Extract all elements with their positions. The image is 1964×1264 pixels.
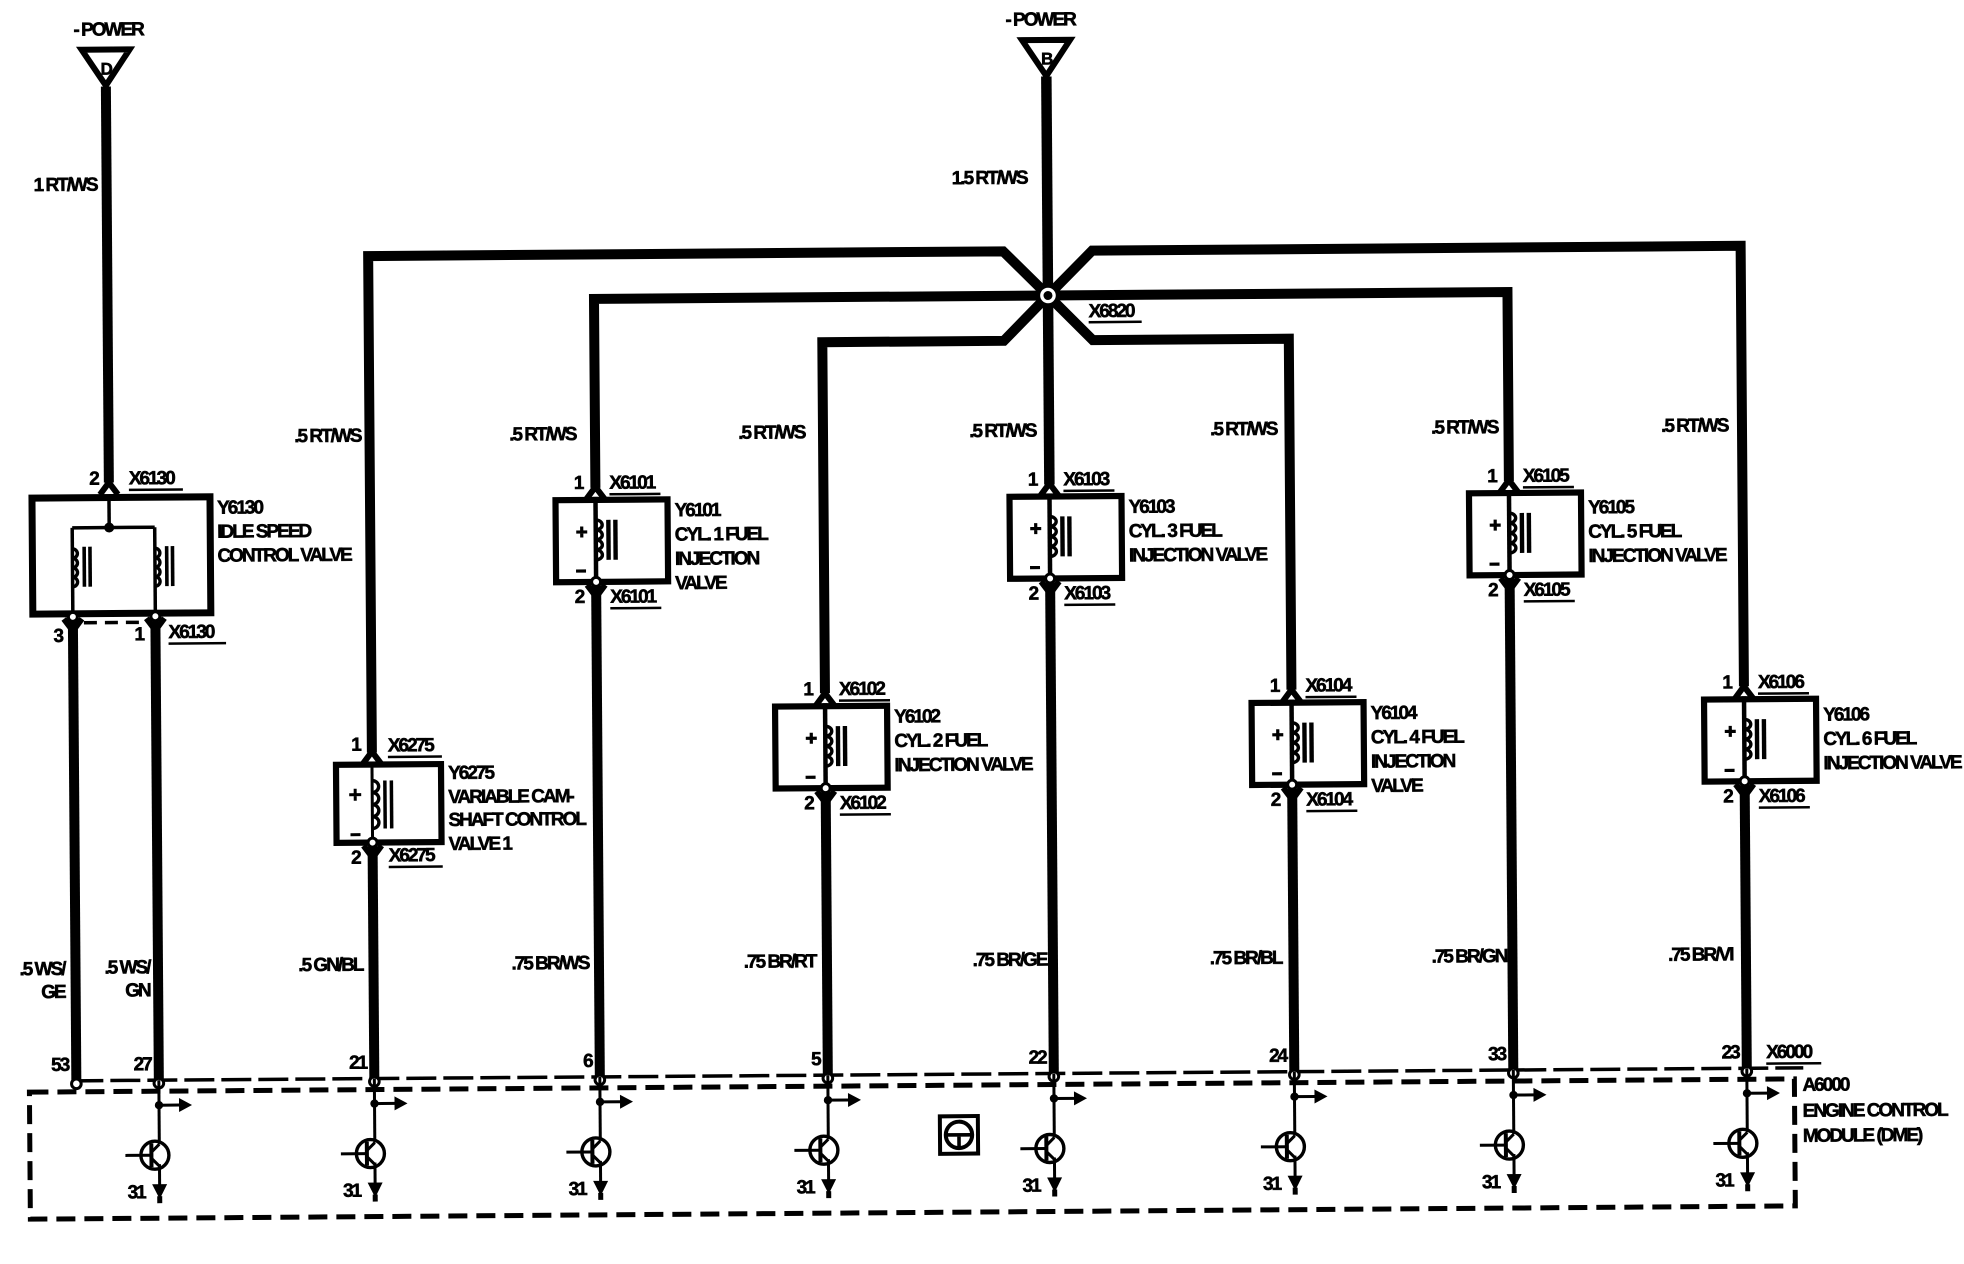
svg-text:31: 31 xyxy=(1022,1176,1042,1197)
svg-text:.75 BR/VI: .75 BR/VI xyxy=(1668,944,1734,965)
svg-text:24: 24 xyxy=(1269,1046,1289,1067)
svg-text:X6102: X6102 xyxy=(840,793,887,814)
svg-text:31: 31 xyxy=(1715,1170,1735,1191)
svg-text:VALVE: VALVE xyxy=(1371,776,1423,797)
svg-text:X6104: X6104 xyxy=(1306,789,1354,810)
svg-text:INJECTION VALVE: INJECTION VALVE xyxy=(1588,545,1727,567)
svg-text:.75 BR/GE: .75 BR/GE xyxy=(973,950,1048,972)
svg-text:SHAFT CONTROL: SHAFT CONTROL xyxy=(448,809,587,831)
svg-text:31: 31 xyxy=(127,1182,147,1203)
svg-text:CYL. 4 FUEL: CYL. 4 FUEL xyxy=(1371,727,1466,749)
svg-text:.5 RT/WS: .5 RT/WS xyxy=(1431,417,1499,439)
svg-text:CYL. 3 FUEL: CYL. 3 FUEL xyxy=(1129,520,1224,542)
svg-text:.5 RT/WS: .5 RT/WS xyxy=(738,422,806,444)
svg-text:VALVE 1: VALVE 1 xyxy=(449,834,514,855)
svg-text:X6130: X6130 xyxy=(168,622,215,643)
svg-text:X6820: X6820 xyxy=(1089,301,1136,322)
svg-text:CYL. 2 FUEL: CYL. 2 FUEL xyxy=(894,730,989,752)
svg-text:Y6105: Y6105 xyxy=(1588,497,1636,518)
svg-text:22: 22 xyxy=(1028,1048,1047,1069)
svg-text:- POWER: - POWER xyxy=(73,19,145,41)
svg-text:.5 GN/BL: .5 GN/BL xyxy=(298,955,365,976)
svg-text:.75 BR/GN: .75 BR/GN xyxy=(1431,946,1507,968)
svg-text:1.5 RT/WS: 1.5 RT/WS xyxy=(952,168,1028,190)
svg-text:1 RT/WS: 1 RT/WS xyxy=(33,175,98,196)
svg-text:53: 53 xyxy=(51,1055,70,1076)
svg-text:X6101: X6101 xyxy=(609,472,657,493)
svg-text:X6105: X6105 xyxy=(1524,580,1572,601)
svg-text:MODULE (DME): MODULE (DME) xyxy=(1803,1125,1923,1147)
svg-text:X6102: X6102 xyxy=(839,679,886,700)
svg-text:31: 31 xyxy=(1263,1174,1283,1195)
svg-text:INJECTION VALVE: INJECTION VALVE xyxy=(1129,544,1268,566)
svg-text:31: 31 xyxy=(568,1179,588,1200)
svg-text:INJECTION VALVE: INJECTION VALVE xyxy=(1823,752,1962,774)
svg-text:21: 21 xyxy=(349,1053,369,1074)
svg-text:Y6102: Y6102 xyxy=(894,706,941,727)
svg-text:31: 31 xyxy=(796,1177,816,1198)
svg-text:CYL. 6 FUEL: CYL. 6 FUEL xyxy=(1823,728,1918,750)
svg-text:Y6101: Y6101 xyxy=(675,500,723,521)
svg-text:.5 RT/WS: .5 RT/WS xyxy=(1661,415,1729,437)
svg-text:Y6103: Y6103 xyxy=(1128,497,1175,518)
svg-text:31: 31 xyxy=(1482,1172,1502,1193)
svg-text:GE: GE xyxy=(41,982,66,1003)
svg-text:VALVE: VALVE xyxy=(675,573,727,594)
svg-text:.5 RT/WS: .5 RT/WS xyxy=(509,424,577,446)
svg-text:.5 WS/: .5 WS/ xyxy=(19,959,67,980)
svg-text:Y6130: Y6130 xyxy=(217,497,264,518)
svg-text:A6000: A6000 xyxy=(1802,1075,1850,1096)
svg-text:CYL. 1 FUEL: CYL. 1 FUEL xyxy=(675,524,770,546)
svg-text:Y6275: Y6275 xyxy=(448,763,496,784)
svg-text:- POWER: - POWER xyxy=(1005,9,1077,31)
svg-text:.5 RT/WS: .5 RT/WS xyxy=(1210,419,1278,441)
svg-text:INJECTION: INJECTION xyxy=(1371,751,1456,773)
svg-text:.75 BR/BL: .75 BR/BL xyxy=(1210,948,1284,970)
svg-text:X6106: X6106 xyxy=(1758,672,1805,693)
svg-text:X6106: X6106 xyxy=(1759,786,1806,807)
svg-text:Y6106: Y6106 xyxy=(1823,704,1870,725)
svg-text:X6130: X6130 xyxy=(129,468,176,489)
svg-text:CONTROL VALVE: CONTROL VALVE xyxy=(217,545,352,567)
svg-text:X6275: X6275 xyxy=(389,845,437,866)
svg-text:.5 RT/WS: .5 RT/WS xyxy=(294,426,362,448)
svg-text:Y6104: Y6104 xyxy=(1371,703,1419,724)
svg-text:.75 BR/WS: .75 BR/WS xyxy=(511,953,590,975)
svg-text:X6103: X6103 xyxy=(1063,469,1110,490)
svg-text:27: 27 xyxy=(134,1054,153,1075)
svg-text:33: 33 xyxy=(1488,1044,1507,1065)
svg-text:23: 23 xyxy=(1721,1042,1740,1063)
svg-text:.5 WS/: .5 WS/ xyxy=(104,957,152,978)
svg-text:X6275: X6275 xyxy=(388,735,436,756)
svg-text:IDLE SPEED: IDLE SPEED xyxy=(217,521,311,543)
svg-text:INJECTION: INJECTION xyxy=(675,548,760,570)
svg-text:X6105: X6105 xyxy=(1523,466,1571,487)
svg-text:31: 31 xyxy=(343,1181,363,1202)
svg-text:CYL. 5 FUEL: CYL. 5 FUEL xyxy=(1588,521,1683,543)
svg-text:X6101: X6101 xyxy=(610,586,658,607)
svg-text:.5 RT/WS: .5 RT/WS xyxy=(969,421,1037,443)
svg-text:INJECTION VALVE: INJECTION VALVE xyxy=(894,754,1033,776)
svg-text:VARIABLE CAM-: VARIABLE CAM- xyxy=(448,786,574,808)
svg-text:ENGINE CONTROL: ENGINE CONTROL xyxy=(1803,1100,1950,1122)
svg-text:X6104: X6104 xyxy=(1305,675,1353,696)
svg-text:X6000: X6000 xyxy=(1766,1042,1813,1063)
svg-text:GN: GN xyxy=(125,980,151,1001)
svg-text:.75 BR/RT: .75 BR/RT xyxy=(744,951,818,973)
svg-text:X6103: X6103 xyxy=(1064,583,1111,604)
